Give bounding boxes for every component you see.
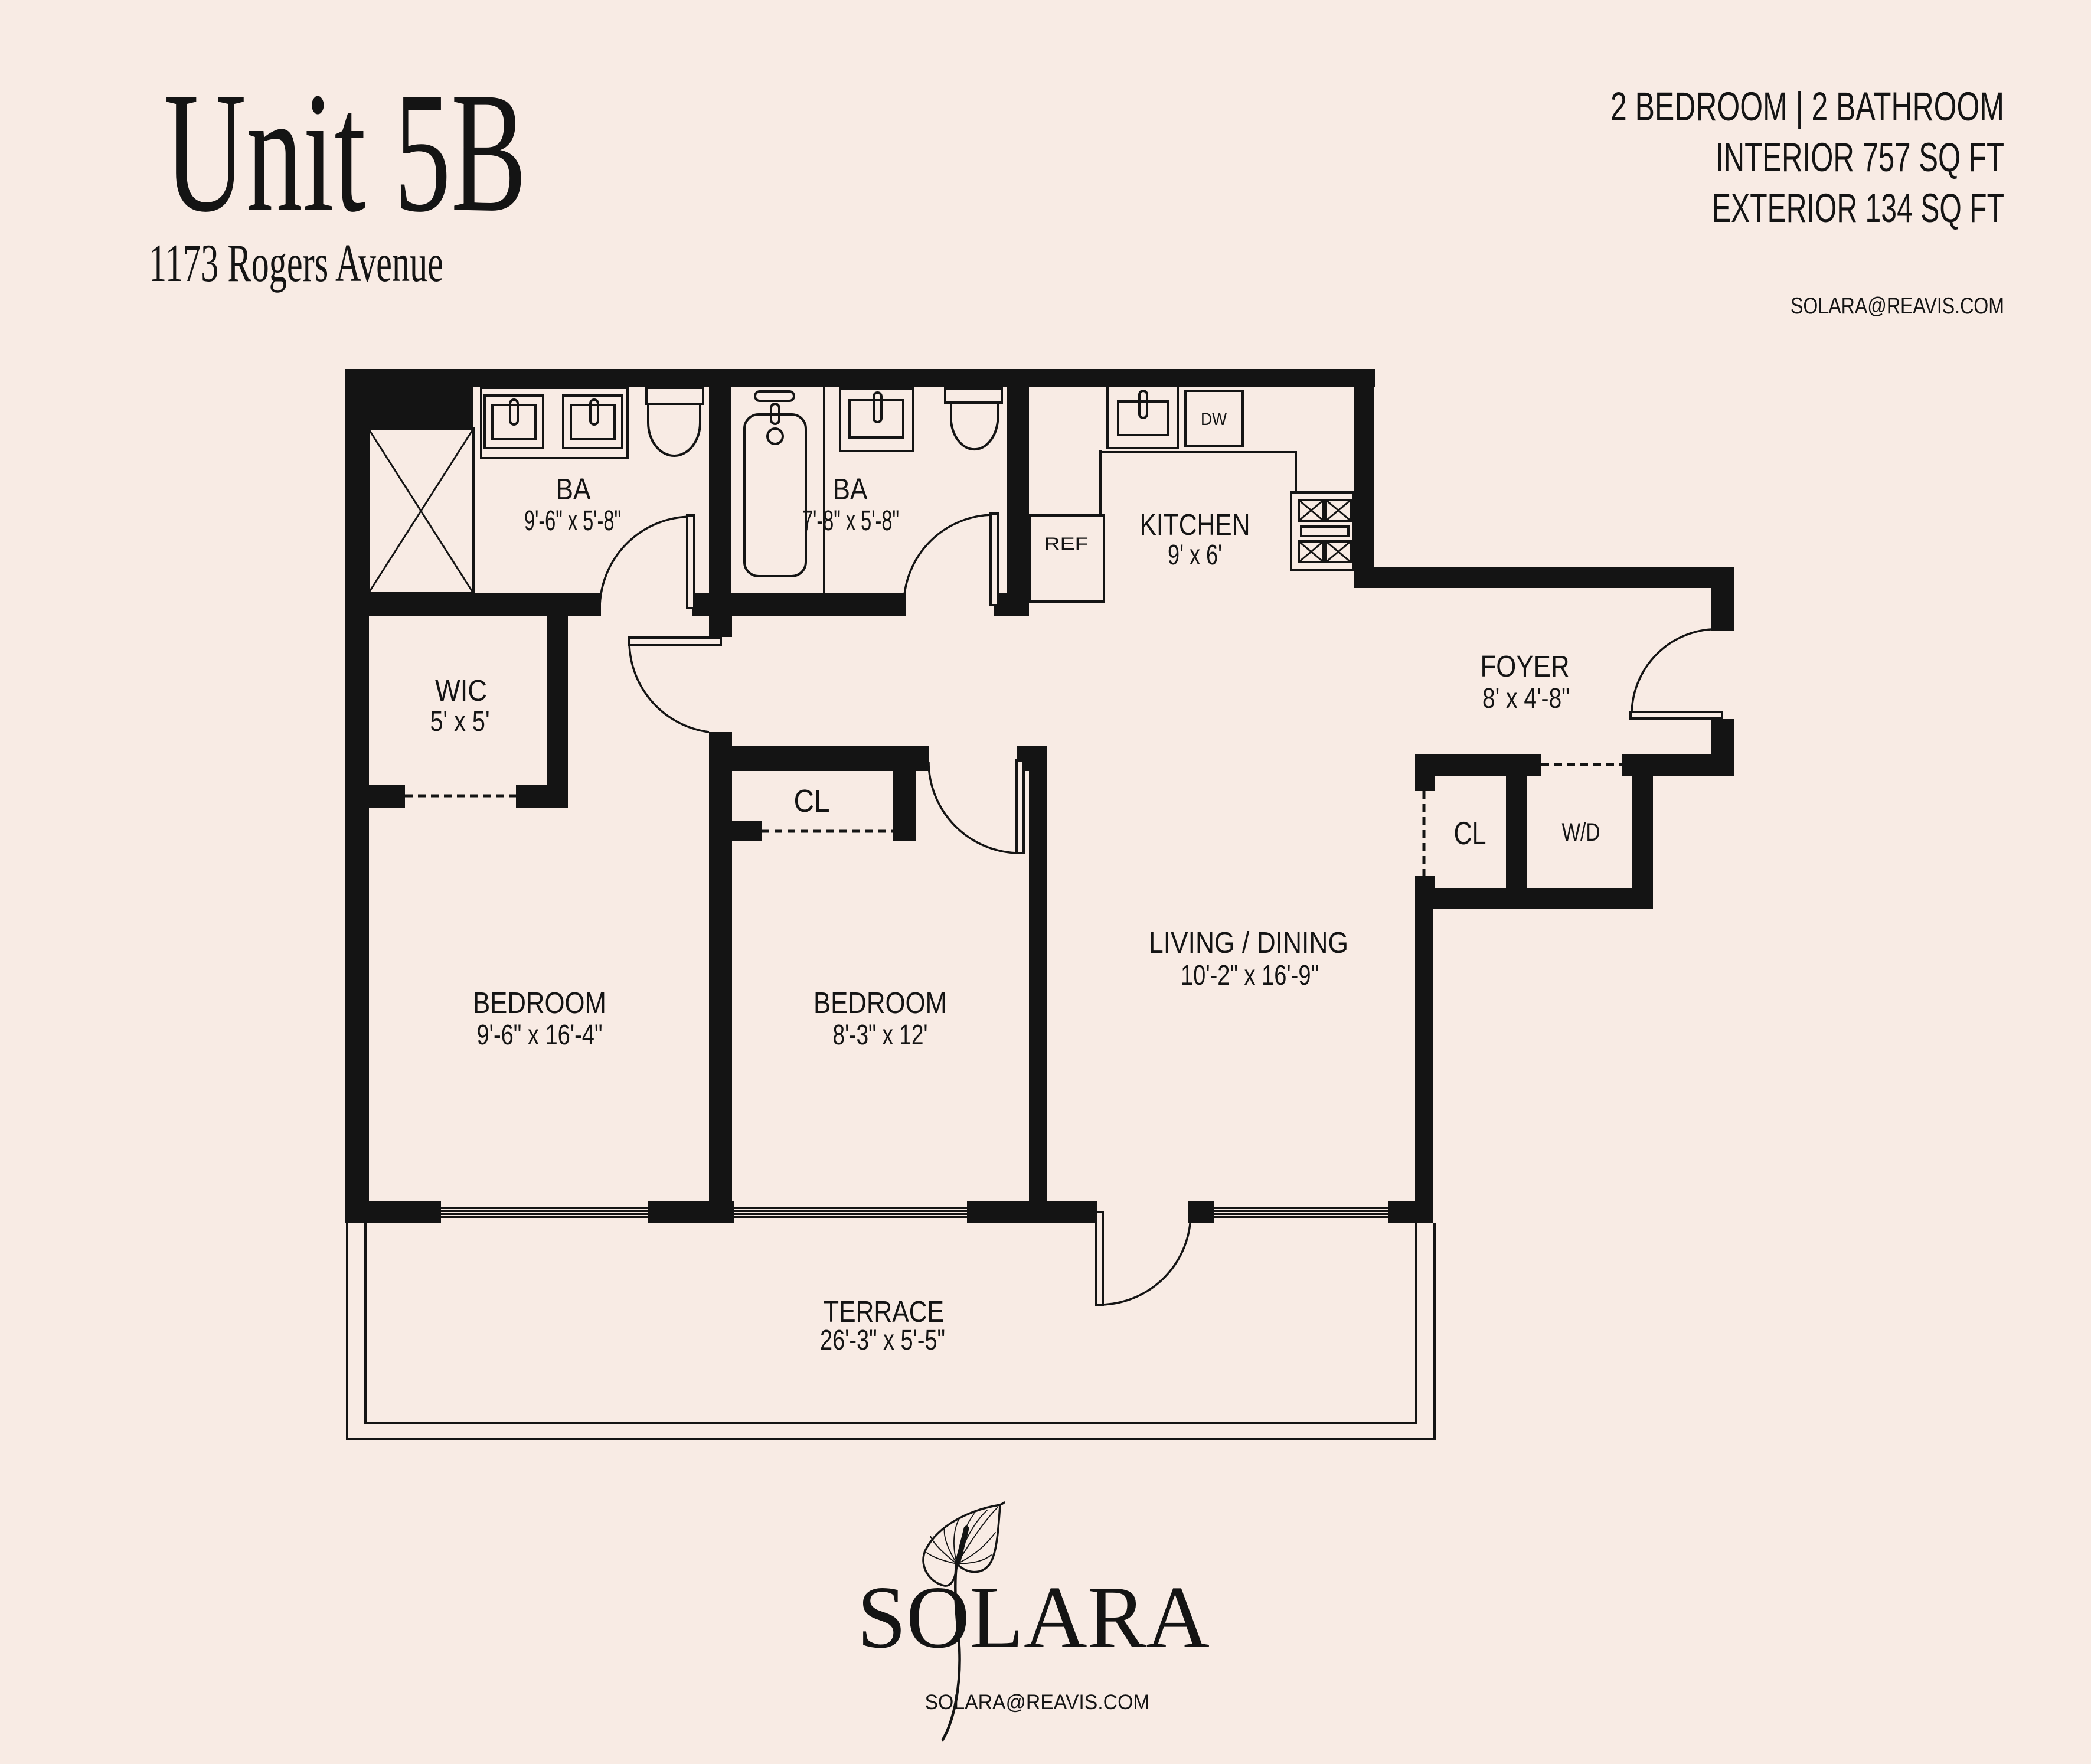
svg-text:BA: BA	[556, 472, 591, 506]
svg-text:KITCHEN: KITCHEN	[1140, 508, 1250, 541]
svg-text:LIVING / DINING: LIVING / DINING	[1149, 926, 1348, 959]
svg-text:CL: CL	[1454, 815, 1486, 851]
svg-text:WIC: WIC	[435, 674, 487, 707]
svg-text:CL: CL	[794, 783, 830, 819]
svg-text:SOLARA: SOLARA	[857, 1567, 1210, 1667]
svg-text:DW: DW	[1201, 410, 1227, 429]
svg-text:W/D: W/D	[1562, 818, 1600, 847]
svg-text:8'-3" x 12': 8'-3" x 12'	[833, 1020, 928, 1051]
svg-text:26'-3" x 5'-5": 26'-3" x 5'-5"	[820, 1325, 945, 1356]
svg-text:BEDROOM: BEDROOM	[473, 986, 606, 1020]
svg-text:8' x 4'-8": 8' x 4'-8"	[1482, 683, 1570, 714]
svg-text:9'-6" x 5'-8": 9'-6" x 5'-8"	[524, 505, 621, 537]
svg-text:9'-6" x 16'-4": 9'-6" x 16'-4"	[477, 1020, 603, 1051]
svg-text:7'-8" x 5'-8": 7'-8" x 5'-8"	[802, 505, 899, 537]
svg-text:9' x 6': 9' x 6'	[1168, 540, 1222, 571]
svg-text:Unit 5B: Unit 5B	[164, 57, 527, 248]
svg-text:EXTERIOR 134 SQ FT: EXTERIOR 134 SQ FT	[1712, 185, 2004, 231]
svg-text:SOLARA@REAVIS.COM: SOLARA@REAVIS.COM	[1791, 293, 2004, 319]
svg-text:10'-2" x 16'-9": 10'-2" x 16'-9"	[1181, 960, 1319, 991]
svg-text:FOYER: FOYER	[1481, 649, 1570, 683]
svg-text:5' x 5': 5' x 5'	[430, 706, 490, 737]
svg-text:BA: BA	[833, 472, 868, 506]
svg-text:BEDROOM: BEDROOM	[813, 986, 947, 1020]
svg-text:SOLARA@REAVIS.COM: SOLARA@REAVIS.COM	[925, 1691, 1150, 1714]
svg-text:1173 Rogers Avenue: 1173 Rogers Avenue	[149, 233, 443, 293]
svg-text:TERRACE: TERRACE	[824, 1295, 944, 1328]
svg-text:INTERIOR 757 SQ FT: INTERIOR 757 SQ FT	[1716, 135, 2004, 180]
svg-text:2 BEDROOM | 2 BATHROOM: 2 BEDROOM | 2 BATHROOM	[1610, 84, 2004, 129]
svg-text:REF: REF	[1044, 534, 1089, 554]
